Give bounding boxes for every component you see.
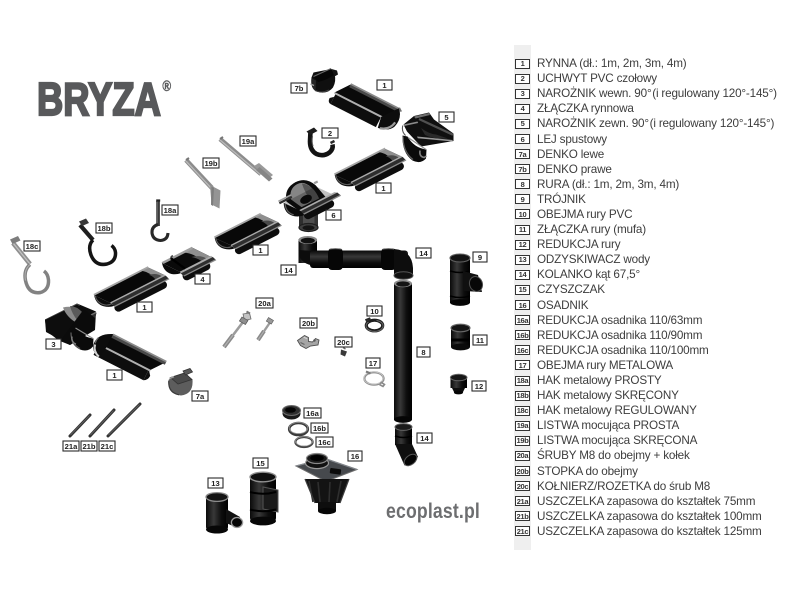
svg-text:6: 6 <box>331 211 335 220</box>
svg-text:20b: 20b <box>302 319 315 328</box>
svg-text:19a: 19a <box>242 137 255 146</box>
svg-text:16a: 16a <box>306 409 319 418</box>
svg-text:15: 15 <box>256 459 265 468</box>
svg-text:14: 14 <box>419 249 428 258</box>
svg-text:14: 14 <box>284 266 293 275</box>
svg-text:16: 16 <box>351 452 359 461</box>
svg-text:10: 10 <box>370 307 378 316</box>
svg-text:17: 17 <box>369 359 377 368</box>
svg-text:21c: 21c <box>101 442 114 451</box>
svg-text:19b: 19b <box>204 159 217 168</box>
svg-text:7b: 7b <box>295 84 304 93</box>
svg-text:16c: 16c <box>318 438 331 447</box>
svg-text:8: 8 <box>421 348 425 357</box>
svg-text:18b: 18b <box>97 224 110 233</box>
svg-text:16b: 16b <box>313 424 326 433</box>
svg-text:18a: 18a <box>164 206 177 215</box>
svg-text:11: 11 <box>476 336 485 345</box>
svg-text:21b: 21b <box>82 442 95 451</box>
svg-text:14: 14 <box>420 434 429 443</box>
svg-text:7a: 7a <box>196 392 205 401</box>
svg-text:20c: 20c <box>337 338 350 347</box>
svg-text:9: 9 <box>478 253 482 262</box>
svg-text:20a: 20a <box>258 299 271 308</box>
svg-text:3: 3 <box>51 340 55 349</box>
svg-text:2: 2 <box>328 129 332 138</box>
svg-text:13: 13 <box>211 479 219 488</box>
svg-text:18c: 18c <box>26 242 39 251</box>
svg-text:12: 12 <box>475 382 483 391</box>
svg-text:21a: 21a <box>65 442 78 451</box>
